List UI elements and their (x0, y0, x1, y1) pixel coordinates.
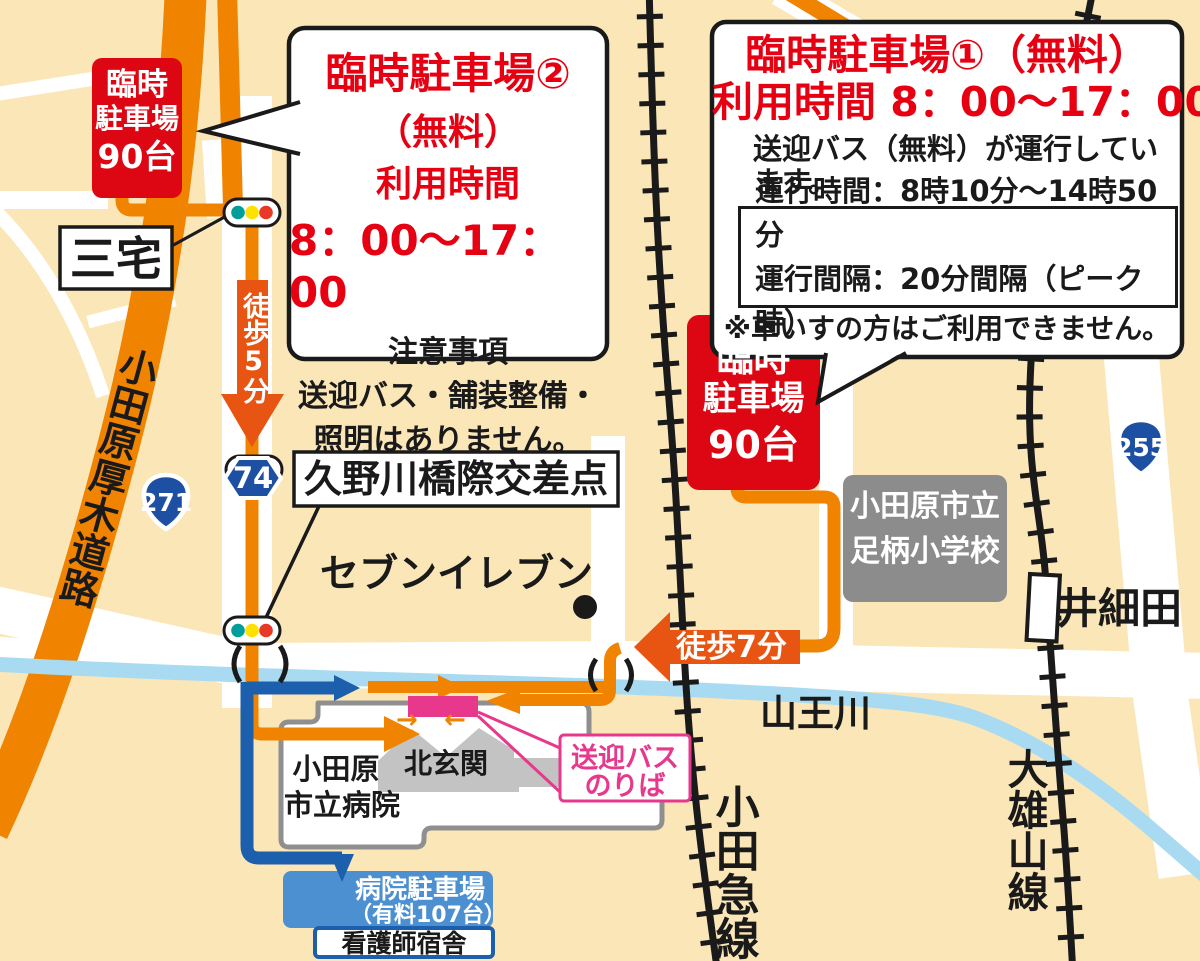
daiyuzan-line-label: 大雄山線 (1000, 748, 1047, 912)
traffic-light-miyake (224, 199, 280, 226)
seven-eleven-label: セブンイレブン (320, 553, 593, 598)
entry-arrow-right-icon: → (396, 706, 418, 736)
odakyu-line-label: 小田急線 (707, 784, 758, 960)
callout2-text: 臨時駐車場② （無料） 利用時間 8：00～17：00 注意事項 送迎バス・舗装… (289, 28, 607, 459)
callout2-note2: 照明はありません。 (313, 415, 582, 459)
nurse-dorm-label: 看護師宿舎 (315, 930, 493, 959)
parking2-line3: 90台 (92, 138, 182, 176)
hospital-label-1: 小田原 (284, 753, 388, 786)
isaida-station-marker (1027, 574, 1060, 641)
callout1-title: 臨時駐車場①（無料） (712, 32, 1182, 79)
callout1-schedule-box: 運行時間：8時10分～14時50分 運行間隔：20分間隔（ピーク時） (738, 206, 1178, 308)
bus-stop-label-2: のりば (560, 771, 690, 802)
school-label-1: 小田原市立 (843, 490, 1007, 525)
hospital-parking-label-1: 病院駐車場 (350, 876, 490, 906)
callout2-note-title: 注意事項 (388, 327, 508, 371)
callout2-hours: 8：00～17：00 (289, 207, 607, 317)
bus-stop-marker (408, 696, 478, 717)
miyake-label: 三宅 (60, 230, 172, 288)
north-entrance-label: 北玄関 (400, 748, 492, 780)
entry-arrow-left-icon: ← (444, 706, 466, 736)
parking1-line1: 臨時 (687, 338, 820, 381)
callout1-hours: 利用時間 8：00～17：00 (712, 79, 1182, 126)
callout1-schedule1: 運行時間：8時10分～14時50分 (755, 169, 1175, 257)
parking2-line2: 駐車場 (92, 103, 182, 135)
parking1-line2: 駐車場 (687, 380, 820, 419)
hospital-parking-label-2: （有料107台） (350, 903, 490, 928)
walk5-label: 徒歩5分 (238, 292, 269, 404)
traffic-light-kunogawa (224, 617, 280, 644)
isaida-label: 井細田 (1056, 585, 1182, 633)
callout2-fee: （無料） (376, 103, 520, 155)
sanno-river-label: 山王川 (760, 693, 871, 736)
school-label-2: 足柄小学校 (843, 535, 1007, 570)
callout2-title: 臨時駐車場② (325, 40, 571, 101)
callout1-body1: 送迎バス（無料）が運行してい (753, 133, 1158, 166)
intersection-label: 久野川橋際交差点 (294, 458, 618, 502)
route255-number: 255 (1115, 434, 1167, 463)
callout2-note1: 送迎バス・舗装整備・ (298, 371, 598, 415)
seven-eleven-dot (573, 595, 597, 619)
hospital-label-2: 市立病院 (284, 789, 388, 822)
route271-number: 271 (140, 489, 192, 518)
walk7-label: 徒歩7分 (676, 631, 787, 666)
callout2-hours-label: 利用時間 (376, 155, 520, 207)
parking2-line1: 臨時 (92, 68, 182, 104)
route74-number: 74 (229, 462, 277, 495)
parking1-line3: 90台 (687, 424, 820, 468)
parking-access-map: 臨時駐車場② （無料） 利用時間 8：00～17：00 注意事項 送迎バス・舗装… (0, 0, 1200, 961)
bus-stop-label-1: 送迎バス (560, 743, 690, 774)
